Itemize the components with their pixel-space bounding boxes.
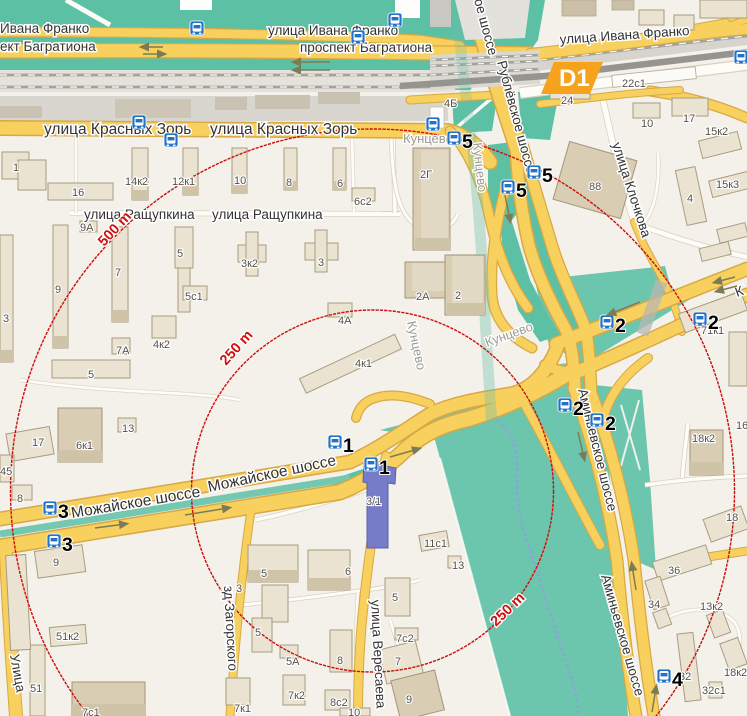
svg-text:5: 5 (255, 627, 261, 639)
svg-text:9А: 9А (80, 222, 94, 234)
svg-text:51: 51 (30, 683, 42, 695)
svg-text:улица Ращупкина: улица Ращупкина (212, 207, 323, 222)
svg-text:15к2: 15к2 (705, 126, 728, 138)
svg-text:8: 8 (337, 655, 343, 667)
svg-text:10: 10 (348, 707, 360, 716)
svg-text:1: 1 (13, 162, 19, 174)
svg-text:13: 13 (122, 423, 134, 435)
svg-text:17: 17 (32, 437, 44, 449)
svg-text:ект Багратиона: ект Багратиона (0, 39, 96, 54)
svg-text:D1: D1 (559, 65, 590, 92)
svg-text:3: 3 (318, 257, 324, 269)
svg-text:8: 8 (17, 493, 23, 505)
svg-text:5: 5 (392, 592, 398, 604)
svg-text:5с1: 5с1 (185, 291, 203, 303)
svg-text:7: 7 (395, 656, 401, 668)
svg-text:2: 2 (615, 315, 626, 337)
svg-text:17: 17 (683, 113, 695, 125)
svg-text:5: 5 (88, 369, 94, 381)
svg-text:16: 16 (72, 187, 84, 199)
svg-text:8: 8 (286, 177, 292, 189)
svg-text:18к2: 18к2 (724, 667, 747, 679)
svg-text:6: 6 (337, 178, 343, 190)
svg-text:2: 2 (605, 413, 616, 435)
svg-text:2: 2 (573, 398, 584, 420)
svg-text:13: 13 (452, 560, 464, 572)
svg-text:5А: 5А (286, 656, 300, 668)
svg-text:1: 1 (343, 435, 354, 457)
svg-text:12к1: 12к1 (172, 176, 195, 188)
svg-text:4А: 4А (338, 315, 352, 327)
svg-text:13к2: 13к2 (700, 601, 723, 613)
svg-text:3: 3 (236, 583, 242, 595)
svg-text:34: 34 (648, 599, 660, 611)
svg-text:36: 36 (668, 565, 680, 577)
svg-text:Кунцево: Кунцево (403, 131, 453, 146)
svg-text:45: 45 (0, 466, 12, 478)
svg-text:3: 3 (62, 534, 73, 556)
svg-text:5: 5 (542, 165, 553, 187)
svg-text:3/1: 3/1 (366, 496, 381, 508)
svg-text:18: 18 (726, 512, 738, 524)
svg-text:11с1: 11с1 (424, 538, 447, 550)
svg-text:6к1: 6к1 (76, 440, 93, 452)
svg-text:2Г: 2Г (420, 169, 432, 181)
svg-text:2: 2 (708, 312, 719, 334)
svg-text:8с2: 8с2 (330, 697, 348, 709)
svg-text:2: 2 (455, 290, 461, 302)
svg-text:улица Красных Зорь: улица Красных Зорь (210, 121, 357, 138)
svg-text:22с1: 22с1 (622, 78, 646, 90)
svg-text:улица Ращупкина: улица Ращупкина (84, 207, 195, 222)
svg-text:6: 6 (345, 566, 351, 578)
svg-text:3: 3 (58, 501, 69, 523)
svg-text:7: 7 (115, 267, 121, 279)
svg-text:10: 10 (641, 118, 653, 130)
svg-text:3к2: 3к2 (241, 258, 258, 270)
svg-text:4Б: 4Б (444, 98, 457, 110)
svg-text:9: 9 (406, 694, 412, 706)
svg-text:24: 24 (561, 95, 573, 107)
svg-text:7к1: 7к1 (234, 703, 251, 715)
svg-text:улица Ивана Франко: улица Ивана Франко (268, 23, 398, 38)
svg-text:4к2: 4к2 (153, 339, 170, 351)
svg-text:5: 5 (516, 180, 527, 202)
svg-text:4: 4 (672, 669, 683, 691)
svg-text:9: 9 (53, 557, 59, 569)
svg-text:5: 5 (177, 248, 183, 260)
svg-text:18к2: 18к2 (692, 433, 715, 445)
svg-text:1: 1 (379, 457, 390, 479)
svg-text:3: 3 (3, 313, 9, 325)
svg-text:16: 16 (736, 420, 747, 432)
svg-text:10: 10 (234, 175, 246, 187)
svg-text:6с2: 6с2 (354, 196, 372, 208)
svg-text:2А: 2А (416, 291, 430, 303)
svg-text:15к3: 15к3 (716, 179, 739, 191)
svg-text:7с1: 7с1 (82, 707, 100, 716)
svg-text:7к2: 7к2 (288, 690, 305, 702)
svg-text:проспект Багратиона: проспект Багратиона (300, 40, 433, 55)
svg-text:7с2: 7с2 (396, 633, 414, 645)
svg-text:Ивана Франко: Ивана Франко (0, 21, 89, 36)
svg-text:5: 5 (261, 568, 267, 580)
svg-text:7А: 7А (116, 345, 130, 357)
svg-text:51к2: 51к2 (56, 631, 79, 643)
svg-text:14к2: 14к2 (125, 176, 148, 188)
svg-text:4: 4 (687, 193, 693, 205)
svg-text:4к1: 4к1 (355, 358, 372, 370)
svg-text:32с1: 32с1 (702, 685, 726, 697)
svg-text:9: 9 (55, 284, 61, 296)
svg-text:5: 5 (462, 131, 473, 153)
svg-text:88: 88 (589, 181, 601, 193)
